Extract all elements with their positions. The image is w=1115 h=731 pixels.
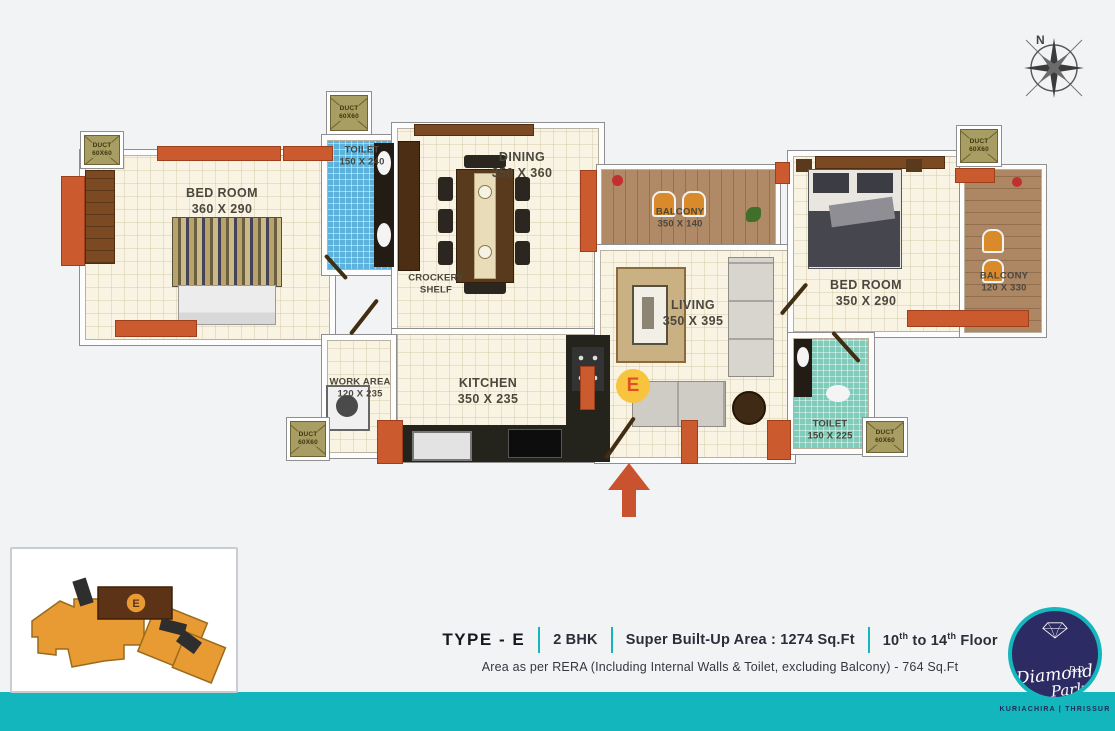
plate-icon (478, 185, 492, 199)
side-table-icon (732, 391, 766, 425)
label-kitchen: KITCHEN350 X 235 (458, 375, 519, 408)
floor-plan-page: { "page": {"accent_teal": "#12b6bc", "ac… (0, 0, 1115, 731)
bedside-lamp-icon (906, 159, 922, 172)
sink-icon (412, 431, 472, 461)
entrance-arrow-icon (608, 463, 650, 490)
super-area-label: Super Built-Up Area : 1274 Sq.Ft (626, 632, 855, 648)
label-work-area: WORK AREA120 X 235 (329, 377, 390, 402)
duct-label: DUCT60X60 (290, 421, 326, 457)
bed-1 (172, 217, 282, 287)
lintel (415, 125, 533, 135)
dining-chair (438, 177, 453, 201)
wall-accent (768, 421, 790, 459)
duct-box: DUCT60X60 (956, 125, 1002, 167)
wall-accent (378, 421, 402, 463)
crockery-shelf-unit (398, 141, 420, 271)
key-plan: E (10, 547, 238, 693)
headboard (816, 157, 944, 168)
plant-icon (746, 207, 761, 222)
compass-rose: N (1014, 28, 1094, 108)
bed-1-foot (178, 285, 276, 325)
footer-bar (0, 692, 1115, 731)
wall-accent (62, 177, 84, 265)
separator (868, 627, 870, 653)
unit-type-badge: E (616, 369, 650, 403)
duct-label: DUCT60X60 (866, 421, 904, 453)
floor-range-label: 10th to 14th Floor (883, 631, 998, 649)
label-bedroom-2: BED ROOM350 X 290 (830, 277, 902, 310)
washbasin-icon (797, 347, 809, 367)
label-crockery-shelf: CROCKERY SHELF (404, 273, 468, 298)
wall-accent (581, 171, 596, 251)
wall-accent (158, 147, 280, 160)
duct-box: DUCT60X60 (326, 91, 372, 135)
separator (538, 627, 540, 653)
flower-icon (1012, 177, 1022, 187)
duct-label: DUCT60X60 (84, 135, 120, 165)
flower-icon (612, 175, 623, 186)
cooktop-icon (508, 429, 562, 458)
unit-summary-line: TYPE - E 2 BHK Super Built-Up Area : 127… (425, 627, 1015, 653)
diamond-icon (1033, 621, 1077, 639)
brand-logo: D.D Diamond Park (1008, 607, 1102, 701)
dining-chair (438, 209, 453, 233)
key-plan-drawing: E (12, 549, 232, 687)
entrance-arrow-stem (622, 489, 636, 517)
bhk-label: 2 BHK (553, 632, 598, 648)
label-balcony-1: BALCONY350 X 140 (656, 207, 704, 232)
duct-box: DUCT60X60 (80, 131, 124, 169)
compass-icon: N (1014, 28, 1094, 108)
label-bedroom-1: BED ROOM360 X 290 (186, 185, 258, 218)
pillow-icon (857, 173, 893, 193)
separator (611, 627, 613, 653)
door-bedroom-1 (349, 298, 379, 335)
wall-accent (581, 367, 594, 409)
duct-box: DUCT60X60 (286, 417, 330, 461)
footer-info: TYPE - E 2 BHK Super Built-Up Area : 127… (425, 627, 1015, 674)
pillow-icon (813, 173, 849, 193)
duct-label: DUCT60X60 (330, 95, 368, 131)
wall-accent (956, 169, 994, 182)
label-toilet-1: TOILET150 X 240 (339, 145, 384, 170)
wall-accent (682, 421, 697, 463)
brand-name-2: Park (1050, 682, 1086, 699)
floor-plan: DUCT60X60 DUCT60X60 DUCT60X60 DUCT60X60 … (60, 85, 1050, 525)
svg-text:E: E (132, 598, 139, 610)
label-balcony-2: BALCONY120 X 330 (980, 271, 1028, 296)
rera-area-label: Area as per RERA (Including Internal Wal… (425, 660, 1015, 674)
svg-text:N: N (1036, 33, 1045, 47)
wall-accent (284, 147, 332, 160)
label-living: LIVING350 X 395 (663, 297, 724, 330)
wall-accent (908, 311, 1028, 326)
dining-chair (515, 209, 530, 233)
plate-icon (478, 245, 492, 259)
wall-accent (776, 163, 789, 183)
label-dining: DINING350 X 360 (492, 149, 553, 182)
dining-chair (438, 241, 453, 265)
sofa-vertical (728, 257, 774, 377)
balcony-chair-icon (982, 229, 1004, 253)
dining-chair (515, 241, 530, 265)
duct-label: DUCT60X60 (960, 129, 998, 163)
wall-accent (116, 321, 196, 336)
wc-icon (826, 385, 850, 402)
type-label: TYPE - E (442, 630, 525, 650)
art-inner (642, 297, 654, 329)
duct-box: DUCT60X60 (862, 417, 908, 457)
brand-location: KURIACHIRA | THRISSUR (990, 706, 1115, 713)
label-toilet-2: TOILET150 X 225 (807, 419, 852, 444)
wc-icon (377, 223, 391, 247)
wardrobe (86, 171, 114, 263)
